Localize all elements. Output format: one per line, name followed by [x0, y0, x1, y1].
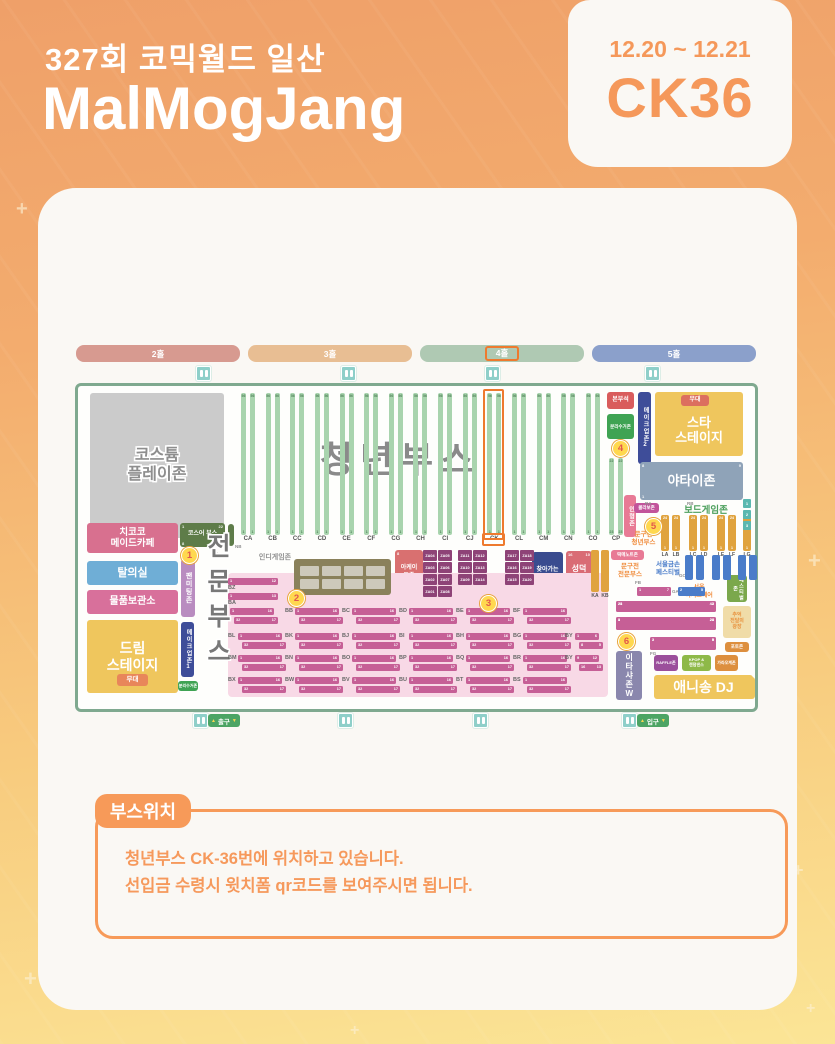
- youth-column: 561: [241, 393, 246, 535]
- za-booth-ZA10: ZA10: [458, 562, 472, 573]
- booth-bar: 116: [352, 655, 396, 662]
- booth-code: CK36: [606, 65, 753, 130]
- stationery-column: 241: [661, 515, 669, 551]
- booth-bar: 3217: [356, 686, 400, 693]
- row-label-BO: BO: [342, 656, 350, 662]
- label-RA: RA: [645, 501, 652, 506]
- restroom-icon: [485, 366, 500, 381]
- restroom-icon: [193, 713, 208, 728]
- booth-bar: 3217: [413, 686, 457, 693]
- booth-bar: 116: [409, 608, 453, 615]
- zone-corner-booth: [741, 677, 755, 699]
- booth-bar: 116: [230, 608, 274, 615]
- booth-bar: 116: [238, 655, 282, 662]
- entry-sign: ▲입구▼: [637, 714, 669, 727]
- plus-icon: +: [806, 1000, 815, 1018]
- row-label-BI: BI: [399, 634, 405, 640]
- label-RB: RB: [687, 501, 694, 506]
- stationery-column: 241: [689, 515, 697, 551]
- page-title: MalMogJang: [42, 74, 405, 143]
- booth-bar: 3217: [299, 664, 343, 671]
- row-label-BU: BU: [399, 678, 407, 684]
- booth-location-note: 청년부스 CK-36번에 위치하고 있습니다. 선입금 수령시 윗치폼 qr코드…: [95, 809, 788, 939]
- booth-bar: 116: [352, 677, 396, 684]
- youth-column: 561: [546, 393, 551, 535]
- zone-makeup-zone-2: 메이크업존2: [638, 392, 651, 464]
- date-booth-card: 12.20 ~ 12.21 CK36: [568, 0, 792, 167]
- restroom-icon: [622, 713, 637, 728]
- booth-bar: 112: [228, 578, 278, 585]
- booth-bar: 3217: [413, 664, 457, 671]
- marker-3: 3: [480, 595, 497, 612]
- youth-column: 561: [561, 393, 566, 535]
- zone-kpop-zone: KPOP &랜덤댄스: [682, 655, 711, 671]
- restroom-icon: [473, 713, 488, 728]
- youth-column-label-CM: CM: [535, 536, 553, 542]
- booth-bar: 3217: [356, 617, 400, 624]
- za-booth-ZA19: ZA19: [520, 562, 534, 573]
- row-label-BT: BT: [456, 678, 463, 684]
- plus-icon: +: [24, 966, 37, 992]
- youth-column-label-CL: CL: [510, 536, 528, 542]
- k-column: [591, 550, 599, 592]
- zone-costume-playzone: 코스튬플레이존: [90, 393, 224, 538]
- za-booth-ZA04: ZA04: [423, 550, 437, 561]
- booth-bar: 116: [352, 633, 396, 640]
- note-line-2: 선입금 수령시 윗치폼 qr코드를 보여주시면 됩니다.: [125, 873, 785, 900]
- youth-column-label-CF: CF: [362, 536, 380, 542]
- highlight-ring-ck-column: [483, 389, 504, 540]
- zone-star-stage-stand: 무대: [681, 395, 709, 406]
- booth-bar: 3217: [242, 686, 286, 693]
- booth-bar: 1613: [579, 664, 603, 671]
- row-label-BY: BY: [565, 634, 573, 640]
- label-FB: FB: [635, 580, 641, 585]
- za-booth-ZA17: ZA17: [505, 550, 519, 561]
- booth-bar: 3217: [299, 642, 343, 649]
- zone-chikoko-maid-cafe: 치코코메이드카페: [87, 523, 178, 553]
- youth-column: 561: [389, 393, 394, 535]
- boardgame-mini: 2: [743, 510, 751, 519]
- row-label-BY: BY: [565, 656, 573, 662]
- label-NB: NB: [235, 544, 242, 549]
- booth-bar: 116: [523, 677, 567, 684]
- stationery-column: 241: [728, 515, 736, 551]
- booth-bar: 116: [466, 677, 510, 684]
- marker-2: 2: [288, 590, 305, 607]
- floor-map: 2홀3홀4홀5홀▲출구▼▲입구▼코스튬플레이존치코코메이드카페코스어 부스122…: [75, 345, 758, 725]
- indie-game-table: [344, 579, 363, 589]
- za-booth-ZA01: ZA01: [423, 586, 437, 597]
- youth-column: 561: [463, 393, 468, 535]
- booth-bar: 116: [466, 633, 510, 640]
- zone-dream-stage-stand: 무대: [117, 674, 148, 686]
- youth-column: 561: [324, 393, 329, 535]
- indie-game-table: [300, 579, 319, 589]
- booth-bar: 116: [352, 608, 396, 615]
- zone-recycle-zone-left: 분리수거존: [178, 681, 198, 691]
- zone-makeup-zone-1: 메이크업존1: [181, 622, 194, 677]
- goldhands-column: [712, 555, 720, 580]
- stationery-column: 241: [717, 515, 725, 551]
- note-line-1: 청년부스 CK-36번에 위치하고 있습니다.: [125, 846, 785, 873]
- booth-bar: 3217: [413, 617, 457, 624]
- za-booth-ZA03: ZA03: [423, 562, 437, 573]
- zone-storage: 물품보관소: [87, 590, 178, 614]
- zone-itasha-zone: 이타샤존W: [616, 651, 642, 700]
- youth-column: 561: [340, 393, 345, 535]
- boardgame-mini: 1: [743, 499, 751, 508]
- youth-column: 561: [299, 393, 304, 535]
- youth-column: 561: [364, 393, 369, 535]
- youth-column: 561: [413, 393, 418, 535]
- youth-column: 561: [438, 393, 443, 535]
- restroom-icon: [338, 713, 353, 728]
- booth-bar: 16: [575, 633, 599, 640]
- goldhands-column: [723, 555, 731, 580]
- indie-game-table: [344, 566, 363, 576]
- indie-game-label: 인디게임존: [255, 554, 295, 563]
- row-label-BJ: BJ: [342, 634, 349, 640]
- booth-bar: 116: [295, 608, 339, 615]
- row-label-BV: BV: [342, 678, 350, 684]
- row-label-BF: BF: [513, 609, 520, 615]
- booth-bar: 85: [579, 642, 603, 649]
- row-label-BW: BW: [285, 678, 294, 684]
- za-booth-ZA08: ZA08: [438, 586, 452, 597]
- youth-column: 561: [521, 393, 526, 535]
- booth-bar: 3217: [470, 617, 514, 624]
- row-label-BE: BE: [456, 609, 464, 615]
- indie-game-box: [294, 559, 391, 595]
- indie-game-table: [322, 566, 341, 576]
- youth-column: 2223: [618, 458, 623, 535]
- youth-column-label-CO: CO: [584, 536, 602, 542]
- za-booth-ZA12: ZA12: [473, 550, 487, 561]
- booth-bar: 116: [523, 608, 567, 615]
- booth-bar: 116: [409, 633, 453, 640]
- hall-bar-4홀: 4홀: [420, 345, 584, 362]
- restroom-icon: [341, 366, 356, 381]
- goldhands-column: [738, 555, 746, 580]
- youth-column: 561: [595, 393, 600, 535]
- youth-column-label-CE: CE: [338, 536, 356, 542]
- indie-game-table: [322, 579, 341, 589]
- youth-column: 561: [512, 393, 517, 535]
- restroom-icon: [645, 366, 660, 381]
- zone-fan-meeting-zone: 팬미팅존: [181, 559, 195, 617]
- row-label-BB: BB: [285, 609, 293, 615]
- youth-column: 561: [537, 393, 542, 535]
- za-booth-ZA05: ZA05: [438, 550, 452, 561]
- booth-bar: 3217: [242, 664, 286, 671]
- booth-bar: 3217: [470, 664, 514, 671]
- row-label-BZ: BZ: [228, 586, 235, 592]
- boardgame-mini: 3: [743, 521, 751, 530]
- booth-bar: 3217: [527, 686, 571, 693]
- booth-bar: 3217: [242, 642, 286, 649]
- za-booth-ZA02: ZA02: [423, 574, 437, 585]
- zone-recycle-zone-top: 분리수거존: [607, 414, 634, 439]
- za-booth-ZA20: ZA20: [520, 574, 534, 585]
- booth-bar: 3217: [299, 686, 343, 693]
- za-booth-ZA11: ZA11: [458, 550, 472, 561]
- zone-fitting-room: 탈의실: [87, 561, 178, 585]
- booth-bar: 2815: [650, 637, 716, 650]
- indie-game-table: [366, 566, 385, 576]
- booth-bar: 116: [409, 655, 453, 662]
- youth-column: 561: [349, 393, 354, 535]
- hall-bar-5홀: 5홀: [592, 345, 756, 362]
- indie-game-table: [366, 579, 385, 589]
- date-range: 12.20 ~ 12.21: [609, 36, 750, 63]
- youth-column-label-CN: CN: [559, 536, 577, 542]
- poster: ++++++ 327회 코믹월드 일산 MalMogJang 12.20 ~ 1…: [0, 0, 835, 1044]
- marker-4: 4: [612, 440, 629, 457]
- booth-bar: 24422543: [616, 601, 716, 612]
- youth-column-label-CD: CD: [313, 536, 331, 542]
- content-card: 2홀3홀4홀5홀▲출구▼▲입구▼코스튬플레이존치코코메이드카페코스어 부스122…: [38, 188, 797, 1010]
- youth-column-label-CC: CC: [288, 536, 306, 542]
- row-label-BD: BD: [399, 609, 407, 615]
- youth-column: 561: [422, 393, 427, 535]
- youth-column-label-CA: CA: [239, 536, 257, 542]
- label-FG: FG: [650, 651, 656, 656]
- zone-hq-seat: 본부석: [607, 392, 634, 409]
- youth-column: 561: [586, 393, 591, 535]
- booth-bar: 3217: [356, 642, 400, 649]
- booth-location-badge: 부스위치: [95, 794, 191, 828]
- youth-column: 561: [290, 393, 295, 535]
- row-label-BK: BK: [285, 634, 293, 640]
- booth-bar: 912: [575, 655, 599, 662]
- highlight-ring-ck-label: [482, 533, 505, 546]
- plus-icon: +: [16, 198, 28, 221]
- youth-column: 2223: [609, 458, 614, 535]
- goldhands-column: [696, 555, 704, 580]
- za-booth-ZA13: ZA13: [473, 562, 487, 573]
- k-column: [601, 550, 609, 592]
- zone-raffle-zone: RAFFLE존: [654, 655, 678, 671]
- youth-column-label-CG: CG: [387, 536, 405, 542]
- stationery-pro-label: 문구전전문부스: [611, 563, 649, 579]
- goldhands-column: [749, 555, 757, 580]
- zone-yatai-zone: 야타이존891: [640, 462, 743, 500]
- youth-column: 561: [398, 393, 403, 535]
- hall-bar-2홀: 2홀: [76, 345, 240, 362]
- row-label-BX: BX: [228, 678, 236, 684]
- row-label-BM: BM: [228, 656, 237, 662]
- zone-anisong-dj: 애니송 DJ: [654, 675, 753, 699]
- stationery-label-LB: LB: [669, 553, 683, 558]
- youth-column-label-CP: CP: [607, 536, 625, 542]
- booth-bar: 3217: [356, 664, 400, 671]
- booth-bar: 3217: [527, 617, 571, 624]
- zone-karaoke-zone: 가라오케존: [715, 655, 738, 671]
- booth-bar: 25: [678, 587, 705, 596]
- booth-bar: 3217: [527, 664, 571, 671]
- hall-bar-3홀: 3홀: [248, 345, 412, 362]
- hall-highlight-ring: 4홀: [485, 346, 520, 361]
- booth-bar: 3217: [299, 617, 343, 624]
- booth-bar: 116: [295, 633, 339, 640]
- youth-column: 561: [315, 393, 320, 535]
- row-label-BQ: BQ: [456, 656, 464, 662]
- marker-6: 6: [618, 633, 635, 650]
- row-label-BA: BA: [228, 601, 236, 607]
- youth-column: 561: [250, 393, 255, 535]
- zone-photo-zone: 포토존: [725, 642, 749, 652]
- youth-column: 561: [472, 393, 477, 535]
- youth-column: 561: [373, 393, 378, 535]
- booth-bar: 17: [637, 587, 671, 596]
- k-label-KB: KB: [598, 594, 612, 599]
- row-label-BS: BS: [513, 678, 521, 684]
- row-label-BP: BP: [399, 656, 407, 662]
- youth-column-label-CJ: CJ: [461, 536, 479, 542]
- plus-icon: +: [808, 548, 821, 574]
- za-booth-ZA15: ZA15: [505, 574, 519, 585]
- booth-bar: 116: [295, 655, 339, 662]
- indie-game-table: [300, 566, 319, 576]
- za-booth-ZA06: ZA06: [438, 562, 452, 573]
- booth-bar: 3217: [234, 617, 278, 624]
- zone-ddeokme-note-zone: 떡메노트존: [611, 550, 644, 560]
- stationery-column: 241: [700, 515, 708, 551]
- youth-column: 561: [275, 393, 280, 535]
- row-label-BC: BC: [342, 609, 350, 615]
- booth-bar: 116: [523, 655, 567, 662]
- booth-bar: 116: [409, 677, 453, 684]
- booth-bar: 824123: [616, 617, 716, 630]
- youth-column-label-CB: CB: [264, 536, 282, 542]
- za-booth-ZA07: ZA07: [438, 574, 452, 585]
- za-booth-ZA18: ZA18: [520, 550, 534, 561]
- booth-bar: 116: [466, 655, 510, 662]
- stationery-column: 241: [672, 515, 680, 551]
- marker-5: 5: [645, 518, 662, 535]
- booth-bar: 3217: [470, 686, 514, 693]
- booth-bar: 3217: [470, 642, 514, 649]
- booth-bar: 116: [523, 633, 567, 640]
- youth-column: 561: [447, 393, 452, 535]
- row-label-BN: BN: [285, 656, 293, 662]
- booth-bar: 113: [228, 593, 278, 600]
- zone-plaza: 추억전달의광장: [723, 606, 751, 638]
- youth-column: 561: [266, 393, 271, 535]
- za-booth-ZA16: ZA16: [505, 562, 519, 573]
- booth-bar: 116: [238, 677, 282, 684]
- booth-bar: 3217: [413, 642, 457, 649]
- row-label-BH: BH: [456, 634, 464, 640]
- youth-column-label-CH: CH: [411, 536, 429, 542]
- plus-icon: +: [350, 1022, 359, 1040]
- booth-bar: 116: [295, 677, 339, 684]
- za-booth-ZA14: ZA14: [473, 574, 487, 585]
- youth-column-label-CI: CI: [436, 536, 454, 542]
- exit-sign: ▲출구▼: [208, 714, 240, 727]
- youth-column: 561: [570, 393, 575, 535]
- restroom-icon: [196, 366, 211, 381]
- booth-bar: 116: [238, 633, 282, 640]
- booth-bar: 3217: [527, 642, 571, 649]
- za-booth-ZA09: ZA09: [458, 574, 472, 585]
- event-title: 327회 코믹월드 일산: [45, 34, 326, 79]
- row-label-BL: BL: [228, 634, 235, 640]
- row-label-BR: BR: [513, 656, 521, 662]
- marker-1: 1: [181, 547, 198, 564]
- row-label-BG: BG: [513, 634, 521, 640]
- goldhands-column: [685, 555, 693, 580]
